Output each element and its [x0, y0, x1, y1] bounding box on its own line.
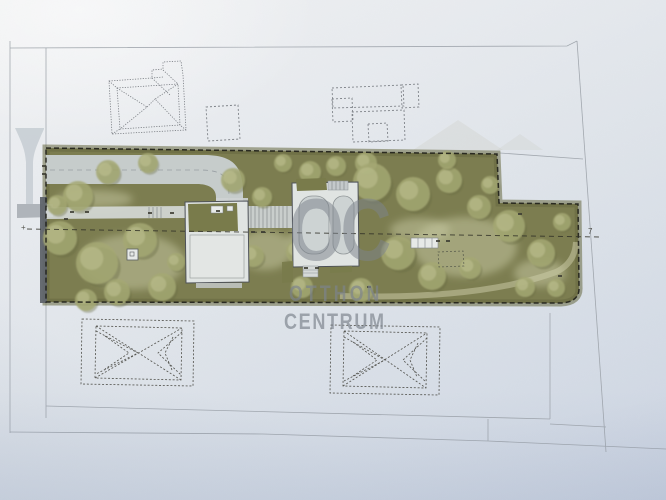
building-west-step [196, 283, 242, 288]
skylight [227, 206, 233, 211]
bench [411, 238, 438, 248]
planter [282, 261, 293, 283]
boundary-mark-left: + [21, 224, 26, 232]
site-plan-drawing [0, 0, 666, 500]
roof-barrel-form [333, 196, 354, 254]
garden-shed [127, 249, 138, 260]
roof-vent-grid [328, 181, 348, 190]
building-east-green-roof [296, 178, 327, 191]
roof-barrel-form [299, 196, 329, 254]
planter [330, 266, 352, 273]
site-plan-photo: OC OTTHON CENTRUM 7 + [0, 0, 666, 500]
building-west-roof-inset [190, 235, 244, 278]
boundary-mark-right: 7 [588, 228, 592, 236]
